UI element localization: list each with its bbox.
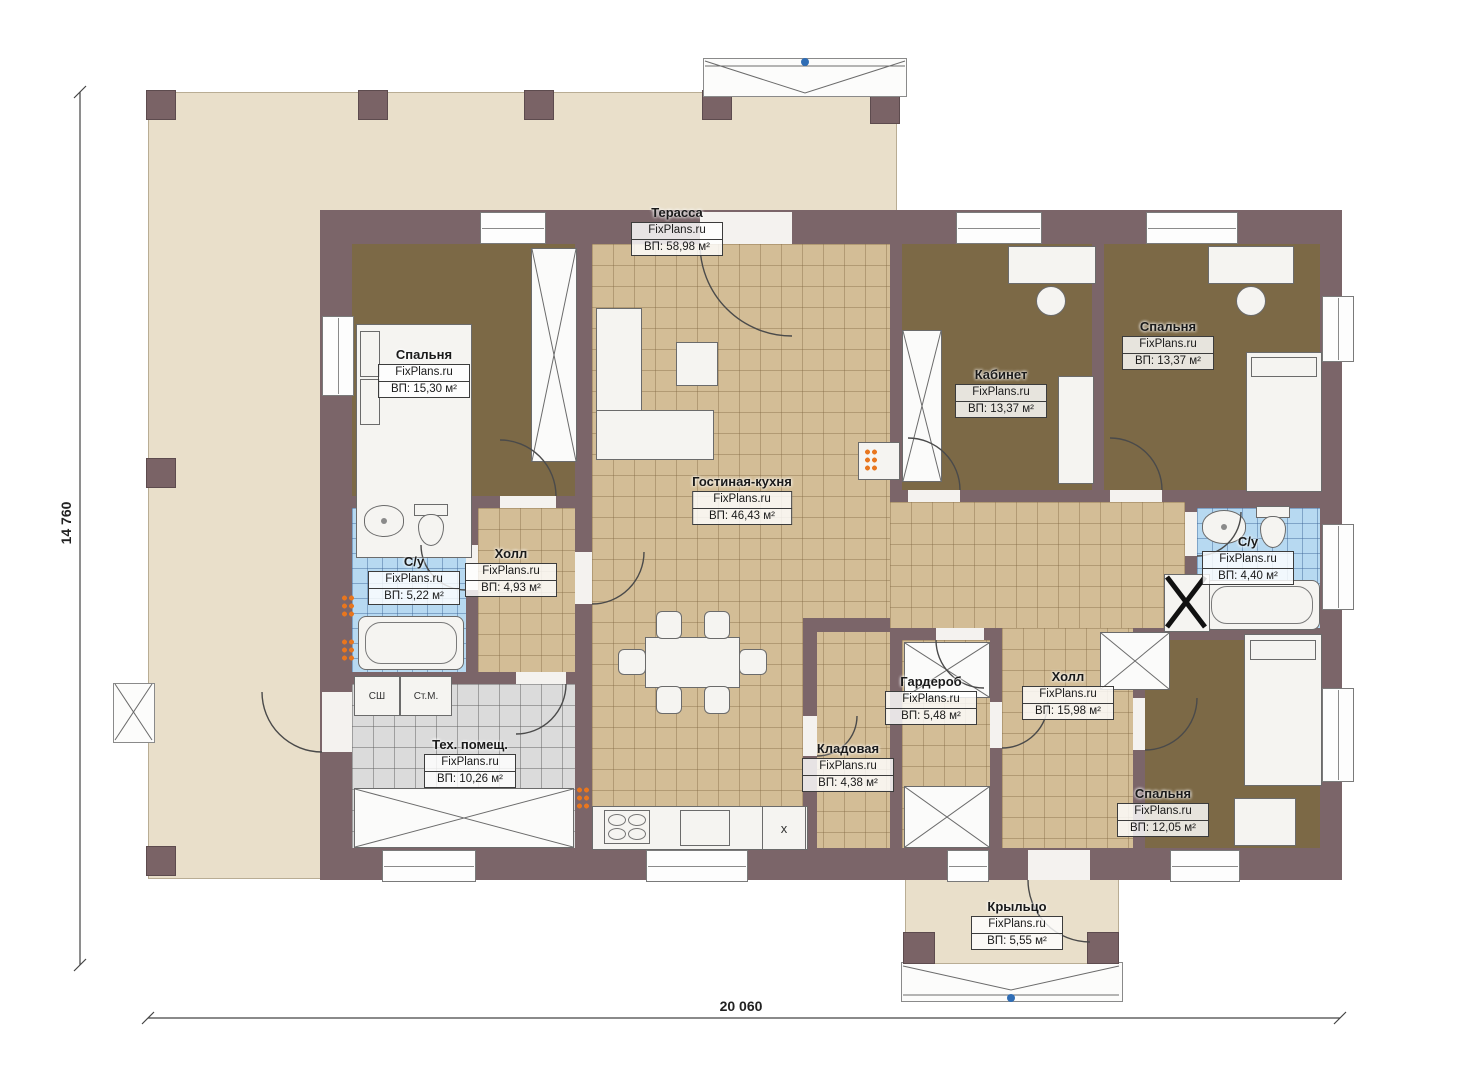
stairs-porch <box>901 962 1123 1002</box>
door-gap <box>575 552 592 604</box>
room-brand: FixPlans.ru <box>1022 686 1114 704</box>
window <box>947 850 989 882</box>
room-label-living-kitchen: Гостиная-кухня FixPlans.ru ВП: 46,43 м² <box>692 475 792 525</box>
office-sofa <box>1058 376 1094 484</box>
stairs-left <box>113 683 155 743</box>
room-brand: FixPlans.ru <box>1117 803 1209 821</box>
dining-table <box>645 637 740 688</box>
room-label-bedroom-bottom-right: Спальня FixPlans.ru ВП: 12,05 м² <box>1117 787 1209 837</box>
room-label-wardrobe: Гардероб FixPlans.ru ВП: 5,48 м² <box>885 675 977 725</box>
terrace-column <box>146 458 176 488</box>
dimension-width-label: 20 060 <box>720 998 763 1014</box>
room-label-terrace: Терасса FixPlans.ru ВП: 58,98 м² <box>631 206 723 256</box>
sofa-chaise <box>596 410 714 460</box>
room-brand: FixPlans.ru <box>368 571 460 589</box>
door-gap <box>516 672 566 684</box>
room-brand: FixPlans.ru <box>1202 551 1294 569</box>
dishwasher-label: x <box>781 821 788 836</box>
bathtub <box>358 616 464 670</box>
room-area: ВП: 5,55 м² <box>971 933 1063 951</box>
window <box>1146 212 1238 244</box>
door-gap <box>500 496 556 508</box>
stove <box>604 810 650 844</box>
desk-chair <box>1036 286 1066 316</box>
room-area: ВП: 13,37 м² <box>1122 353 1214 371</box>
dining-chair <box>618 649 646 675</box>
pillow <box>360 331 380 377</box>
room-label-bedroom-top-right: Спальня FixPlans.ru ВП: 13,37 м² <box>1122 320 1214 370</box>
dining-chair <box>704 611 730 639</box>
dining-chair <box>739 649 767 675</box>
room-name: Тех. помещ. <box>424 738 516 751</box>
porch-column <box>903 932 935 964</box>
room-name: Спальня <box>1122 320 1214 333</box>
room-area: ВП: 12,05 м² <box>1117 820 1209 838</box>
window <box>322 316 354 396</box>
tech-equipment <box>354 788 574 848</box>
door-gap <box>990 702 1002 748</box>
room-area: ВП: 13,37 м² <box>955 401 1047 419</box>
room-area: ВП: 15,98 м² <box>1022 703 1114 721</box>
room-label-bedroom-top-left: Спальня FixPlans.ru ВП: 15,30 м² <box>378 348 470 398</box>
dishwasher: x <box>762 806 806 850</box>
wardrobe-cabinet <box>531 248 577 462</box>
bathtub <box>1204 580 1320 630</box>
dining-chair <box>656 686 682 714</box>
room-area: ВП: 4,40 м² <box>1202 568 1294 586</box>
room-brand: FixPlans.ru <box>692 491 792 509</box>
room-name: Кабинет <box>955 368 1047 381</box>
room-area: ВП: 58,98 м² <box>631 239 723 257</box>
dimension-height-label: 14 760 <box>58 502 74 545</box>
radiator-dots <box>864 448 878 472</box>
pillow <box>360 379 380 425</box>
terrace-column <box>146 90 176 120</box>
room-label-pantry: Кладовая FixPlans.ru ВП: 4,38 м² <box>802 742 894 792</box>
room-name: Холл <box>1022 670 1114 683</box>
door-gap <box>1133 698 1145 750</box>
room-label-bathroom-right: С/у FixPlans.ru ВП: 4,40 м² <box>1202 535 1294 585</box>
desk-chair <box>1236 286 1266 316</box>
room-label-bathroom-left: С/у FixPlans.ru ВП: 5,22 м² <box>368 555 460 605</box>
room-name: Терасса <box>631 206 723 219</box>
terrace-column <box>146 846 176 876</box>
coffee-table <box>676 342 718 386</box>
door-gap <box>908 490 960 502</box>
corridor-floor <box>890 502 1185 628</box>
room-area: ВП: 15,30 м² <box>378 381 470 399</box>
appliance-sh: СШ <box>354 676 400 716</box>
room-name: Крыльцо <box>971 900 1063 913</box>
terrace-column <box>358 90 388 120</box>
porch-column <box>1087 932 1119 964</box>
tech-exterior-door-gap <box>322 692 352 752</box>
entrance-door-gap <box>1028 850 1090 880</box>
room-name: Кладовая <box>802 742 894 755</box>
bathroom-sink <box>364 505 404 537</box>
pantry-wall <box>803 618 890 632</box>
room-area: ВП: 10,26 м² <box>424 771 516 789</box>
room-label-porch: Крыльцо FixPlans.ru ВП: 5,55 м² <box>971 900 1063 950</box>
terrace-floor <box>148 216 327 879</box>
kitchen-sink <box>680 810 730 846</box>
room-name: Гостиная-кухня <box>692 475 792 488</box>
radiator-dots <box>341 638 355 662</box>
room-area: ВП: 4,38 м² <box>802 775 894 793</box>
room-brand: FixPlans.ru <box>1122 336 1214 354</box>
window <box>956 212 1042 244</box>
floorplan-canvas: x СШ Ст.М. <box>0 0 1474 1080</box>
pillow <box>1250 640 1316 660</box>
room-brand: FixPlans.ru <box>378 364 470 382</box>
dining-chair <box>656 611 682 639</box>
room-brand: FixPlans.ru <box>631 222 723 240</box>
room-brand: FixPlans.ru <box>424 754 516 772</box>
room-area: ВП: 46,43 м² <box>692 508 792 526</box>
room-name: Спальня <box>1117 787 1209 800</box>
room-label-hall-left: Холл FixPlans.ru ВП: 4,93 м² <box>465 547 557 597</box>
room-area: ВП: 5,22 м² <box>368 588 460 606</box>
appliance-sh-label: СШ <box>369 691 385 702</box>
window <box>646 850 748 882</box>
room-area: ВП: 4,93 м² <box>465 580 557 598</box>
window <box>1322 688 1354 782</box>
terrace-column <box>870 94 900 124</box>
desk <box>1208 246 1294 284</box>
window <box>1322 524 1354 610</box>
room-name: С/у <box>1202 535 1294 548</box>
room-name: Гардероб <box>885 675 977 688</box>
dresser <box>1234 798 1296 846</box>
door-gap <box>1110 490 1162 502</box>
terrace-column <box>524 90 554 120</box>
desk <box>1008 246 1096 284</box>
room-brand: FixPlans.ru <box>885 691 977 709</box>
room-brand: FixPlans.ru <box>465 563 557 581</box>
dining-chair <box>704 686 730 714</box>
window <box>1322 296 1354 362</box>
window <box>382 850 476 882</box>
room-brand: FixPlans.ru <box>971 916 1063 934</box>
room-brand: FixPlans.ru <box>955 384 1047 402</box>
appliance-stm-label: Ст.М. <box>414 691 439 702</box>
terrace-floor <box>148 92 897 217</box>
radiator-dots <box>576 786 590 810</box>
room-area: ВП: 5,48 м² <box>885 708 977 726</box>
room-name: Холл <box>465 547 557 560</box>
room-name: Спальня <box>378 348 470 361</box>
radiator-dots <box>341 594 355 618</box>
door-gap <box>936 628 984 640</box>
wardrobe-shelves-bottom <box>904 786 990 848</box>
window <box>480 212 546 244</box>
room-brand: FixPlans.ru <box>802 758 894 776</box>
pillow <box>1251 357 1317 377</box>
appliance-stm: Ст.М. <box>400 676 452 716</box>
room-label-tech-room: Тех. помещ. FixPlans.ru ВП: 10,26 м² <box>424 738 516 788</box>
room-label-hall-right: Холл FixPlans.ru ВП: 15,98 м² <box>1022 670 1114 720</box>
room-name: С/у <box>368 555 460 568</box>
door-gap <box>1185 512 1197 556</box>
office-cabinet <box>902 330 942 482</box>
room-label-office: Кабинет FixPlans.ru ВП: 13,37 м² <box>955 368 1047 418</box>
stairs-top <box>703 58 907 97</box>
window <box>1170 850 1240 882</box>
